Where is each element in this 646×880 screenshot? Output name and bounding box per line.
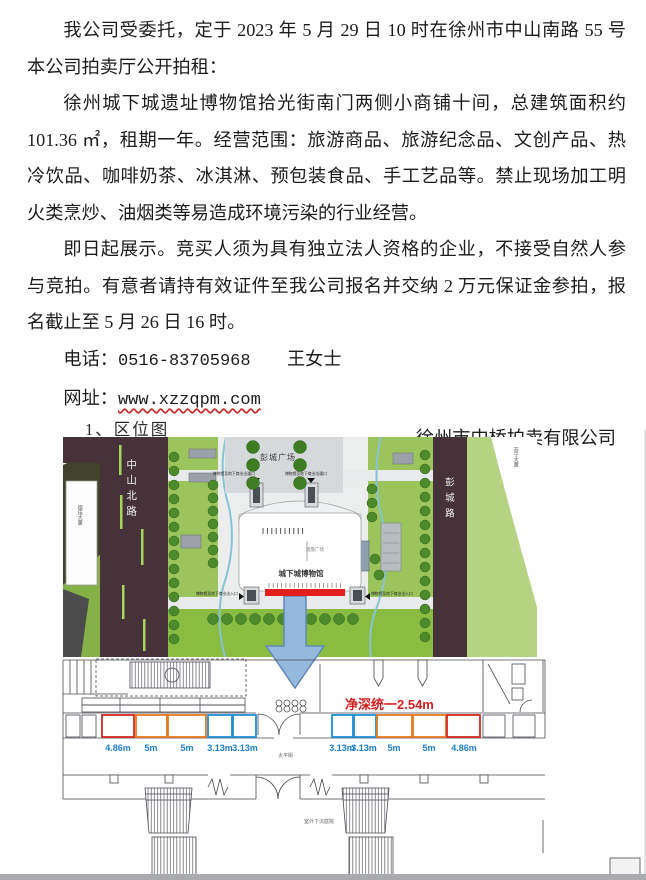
shop-unit-blue <box>208 715 232 737</box>
paragraph-2-line: 冷饮品、咖啡奶茶、冰淇淋、预包装食品、手工艺品等。禁止现场加工明 <box>27 158 626 195</box>
pengcheng-square-pavement <box>225 437 343 493</box>
shop-unit-blue <box>332 715 353 737</box>
notice-body: 我公司受委托，定于 2023 年 5 月 29 日 10 时在徐州市中山南路 5… <box>27 12 626 456</box>
website-line: 网址：www.xzzqpm.com <box>27 380 626 420</box>
shop-highlight-strip <box>265 589 345 596</box>
east-building <box>381 523 401 571</box>
paragraph-3-line: 即日起展示。竞买人须为具有独立法人资格的企业，不接受自然人参 <box>27 231 626 268</box>
paragraph-3-line: 名截止至 5 月 26 日 16 时。 <box>27 304 626 341</box>
shop-floor-plan: 4.86m 5m 5m 3.13m 3.13m 3.13m 3.13m 5m 5… <box>60 656 646 880</box>
shop-unit-orange <box>377 715 412 737</box>
viewing-plaza-label: 观景广场 <box>306 547 324 552</box>
paragraph-2-line: 徐州城下城遗址博物馆拾光街南门两侧小商铺十间，总建筑面积约 <box>27 85 626 122</box>
paragraph-3-line: 与竞拍。有意者请持有效证件至我公司报名并交纳 2 万元保证金参拍，报 <box>27 268 626 305</box>
shop-unit-orange <box>413 715 446 737</box>
pengcheng-square-label: 彭城广场 <box>260 453 296 462</box>
dimension-label: 3.13m <box>232 743 258 753</box>
paragraph-2-line: 101.36 ㎡，租期一年。经营范围：旅游商品、旅游纪念品、文创产品、热 <box>27 122 626 159</box>
plan-walls <box>63 659 640 876</box>
paragraph-1-line: 我公司受委托，定于 2023 年 5 月 29 日 10 时在徐州市中山南路 5… <box>27 12 626 49</box>
website-url: www.xzzqpm.com <box>118 391 261 410</box>
suning-tower-label: 苏宁大厦 <box>512 447 518 467</box>
shop-unit-blue <box>233 715 256 737</box>
shop-dimension-labels: 4.86m 5m 5m 3.13m 3.13m 3.13m 3.13m 5m 5… <box>105 743 477 753</box>
dimension-label: 5m <box>144 743 157 753</box>
shop-unit-outlines <box>102 715 480 737</box>
museum-building <box>239 513 361 591</box>
dimension-label: 3.13m <box>351 743 377 753</box>
scanned-auction-notice-page: 我公司受委托，定于 2023 年 5 月 29 日 10 时在徐州市中山南路 5… <box>0 0 646 880</box>
shop-unit-orange <box>136 715 167 737</box>
dimension-label: 4.86m <box>105 743 131 753</box>
road-corner <box>63 437 100 463</box>
depth-note: 净深统一2.54m <box>345 697 434 712</box>
phone-number: 0516-83705968 <box>118 352 251 371</box>
sunken-courtyard-label: 室外下沉庭院 <box>304 818 334 825</box>
paragraph-2-line: 火类烹炒、油烟类等易造成环境污染的行业经营。 <box>27 195 626 232</box>
shop-unit-red <box>447 715 480 737</box>
shop-unit-blue <box>354 715 376 737</box>
museum-label: 城下城博物馆 <box>253 570 349 579</box>
scan-edge-bottom <box>0 874 646 880</box>
phone-line: 电话：0516-83705968王女士 <box>27 341 626 381</box>
entrance-label-south-right: 博物馆及地下商业出入口 <box>371 592 413 596</box>
paragraph-1-line: 本公司拍卖厅公开拍租： <box>27 49 626 86</box>
shop-unit-orange <box>168 715 206 737</box>
dimension-label: 5m <box>180 743 193 753</box>
entrance-label-top-right: 博物馆及地下商业出通口 <box>285 472 327 476</box>
dejia-tower-label: 德佳大厦 <box>76 505 82 525</box>
road-label-pengcheng: 彭城路 <box>442 477 453 524</box>
pengcheng-road <box>433 437 467 657</box>
phone-label: 电话： <box>63 349 118 369</box>
dimension-label: 5m <box>387 743 400 753</box>
shop-unit-red <box>102 715 134 737</box>
entrance-label-top-left: 博物馆及地下商业出通口 <box>213 472 255 476</box>
dimension-label: 4.86m <box>451 743 477 753</box>
dimension-label: 3.13m <box>207 743 233 753</box>
road-label-zhongshan-north: 中山北路 <box>125 459 137 521</box>
contact-name: 王女士 <box>287 349 342 369</box>
website-label: 网址： <box>63 388 118 408</box>
dejia-tower-building <box>66 481 97 585</box>
street-label: 太平街 <box>278 752 293 759</box>
dimension-label: 5m <box>422 743 435 753</box>
entrance-label-south-left: 博物馆及地下商业出入口 <box>196 592 238 596</box>
